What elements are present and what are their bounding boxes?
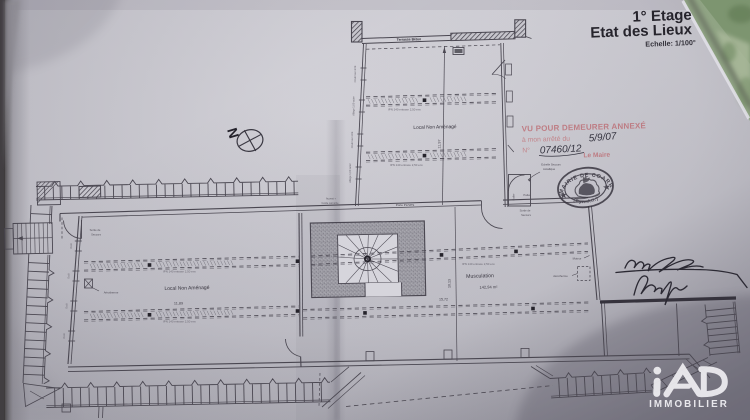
- svg-text:15,72: 15,72: [439, 298, 448, 302]
- svg-text:Oculi: Oculi: [63, 333, 66, 339]
- svg-text:Allège 1,00 acier: Allège 1,00 acier: [348, 163, 352, 182]
- svg-text:Palier: Palier: [512, 193, 516, 200]
- svg-text:142,94 m²: 142,94 m²: [479, 284, 498, 289]
- svg-text:IPN 140 entraxe 2,50 env: IPN 140 entraxe 2,50 env: [388, 108, 421, 112]
- svg-text:à mon arrêté du: à mon arrêté du: [522, 136, 570, 144]
- svg-text:Local Non Aménagé: Local Non Aménagé: [413, 124, 457, 131]
- svg-text:Sortie de: Sortie de: [90, 228, 101, 232]
- svg-text:11,89: 11,89: [174, 302, 183, 306]
- svg-text:N°: N°: [522, 146, 530, 154]
- svg-text:métallique: métallique: [543, 167, 556, 171]
- svg-text:Oculi tout vitré: Oculi tout vitré: [350, 131, 354, 148]
- svg-text:Echelle Secours: Echelle Secours: [541, 163, 561, 167]
- svg-text:IPN 140 entraxe 2,50 env: IPN 140 entraxe 2,50 env: [163, 320, 196, 324]
- svg-text:10,13: 10,13: [448, 279, 452, 288]
- svg-text:Moteur: Moteur: [573, 257, 582, 261]
- svg-text:Terrasse Béton: Terrasse Béton: [397, 37, 422, 42]
- svg-text:Palier: Palier: [523, 193, 530, 197]
- svg-text:Oculi tout vitré: Oculi tout vitré: [353, 65, 357, 82]
- svg-text:07460/12: 07460/12: [540, 143, 583, 156]
- svg-text:Secours: Secours: [521, 213, 532, 217]
- svg-text:Aérotherme: Aérotherme: [553, 274, 568, 278]
- svg-text:Oculi: Oculi: [68, 273, 71, 279]
- svg-text:Sortie de: Sortie de: [520, 209, 531, 213]
- svg-text:Echelle: 1/100°: Echelle: 1/100°: [645, 38, 696, 49]
- svg-text:11,97: 11,97: [438, 139, 442, 148]
- svg-text:IMMOBILIER: IMMOBILIER: [649, 399, 729, 410]
- svg-text:Secours: Secours: [91, 233, 102, 237]
- svg-text:IPN 140 entraxe 2,50 env: IPN 140 entraxe 2,50 env: [462, 262, 495, 266]
- svg-text:Local Non Aménagé: Local Non Aménagé: [164, 285, 209, 292]
- svg-text:Musculation: Musculation: [466, 273, 494, 280]
- svg-text:Allège 1,00 acier: Allège 1,00 acier: [351, 96, 355, 115]
- svg-text:IPN 140 entraxe 2,50 env: IPN 140 entraxe 2,50 env: [163, 270, 196, 274]
- svg-text:Auvent +: Auvent +: [326, 198, 336, 201]
- svg-text:IPN 140 entraxe 2,50 env: IPN 140 entraxe 2,50 env: [390, 163, 423, 167]
- svg-text:Oculi: Oculi: [65, 303, 68, 309]
- svg-text:Oculi: Oculi: [70, 243, 73, 249]
- svg-text:Le Maire: Le Maire: [583, 152, 610, 160]
- svg-text:Corde corniche: Corde corniche: [322, 202, 340, 205]
- svg-text:Aérotherme: Aérotherme: [104, 291, 119, 295]
